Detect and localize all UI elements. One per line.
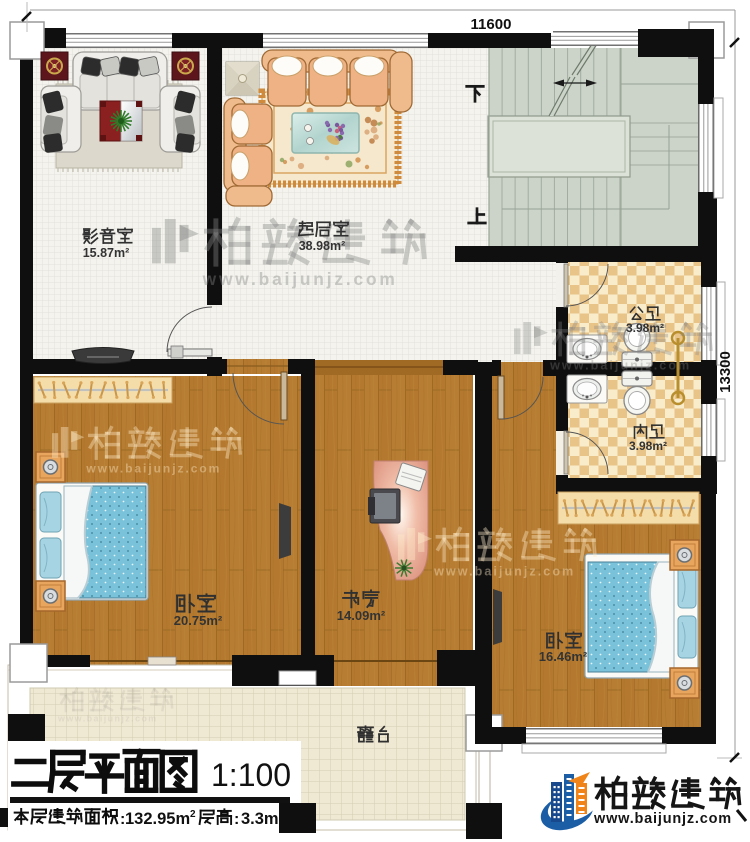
svg-text:2: 2 xyxy=(190,809,196,820)
svg-text:www.baijunjz.com: www.baijunjz.com xyxy=(85,462,221,476)
svg-text:1:100: 1:100 xyxy=(211,757,291,793)
svg-text:13300: 13300 xyxy=(717,351,734,393)
svg-text:20.75m²: 20.75m² xyxy=(174,613,223,628)
svg-text:www.baijunjz.com: www.baijunjz.com xyxy=(202,269,398,289)
svg-text:www.baijunjz.com: www.baijunjz.com xyxy=(57,714,158,724)
svg-text:3.3m: 3.3m xyxy=(241,810,279,828)
svg-text:www.baijunjz.com: www.baijunjz.com xyxy=(433,565,575,579)
svg-text:14.09m²: 14.09m² xyxy=(337,608,386,623)
svg-text:16.46m²: 16.46m² xyxy=(539,649,588,664)
svg-text:3.98m²: 3.98m² xyxy=(626,321,664,335)
svg-text:www.baijunjz.com: www.baijunjz.com xyxy=(593,811,732,827)
svg-text:38.98m²: 38.98m² xyxy=(299,239,346,253)
svg-text::: : xyxy=(234,811,239,828)
svg-text:3.98m²: 3.98m² xyxy=(629,439,667,453)
svg-text:15.87m²: 15.87m² xyxy=(83,246,130,260)
svg-text:www.baijunjz.com: www.baijunjz.com xyxy=(549,359,691,373)
svg-text:11600: 11600 xyxy=(471,16,512,33)
svg-text:132.95m: 132.95m xyxy=(125,810,190,828)
